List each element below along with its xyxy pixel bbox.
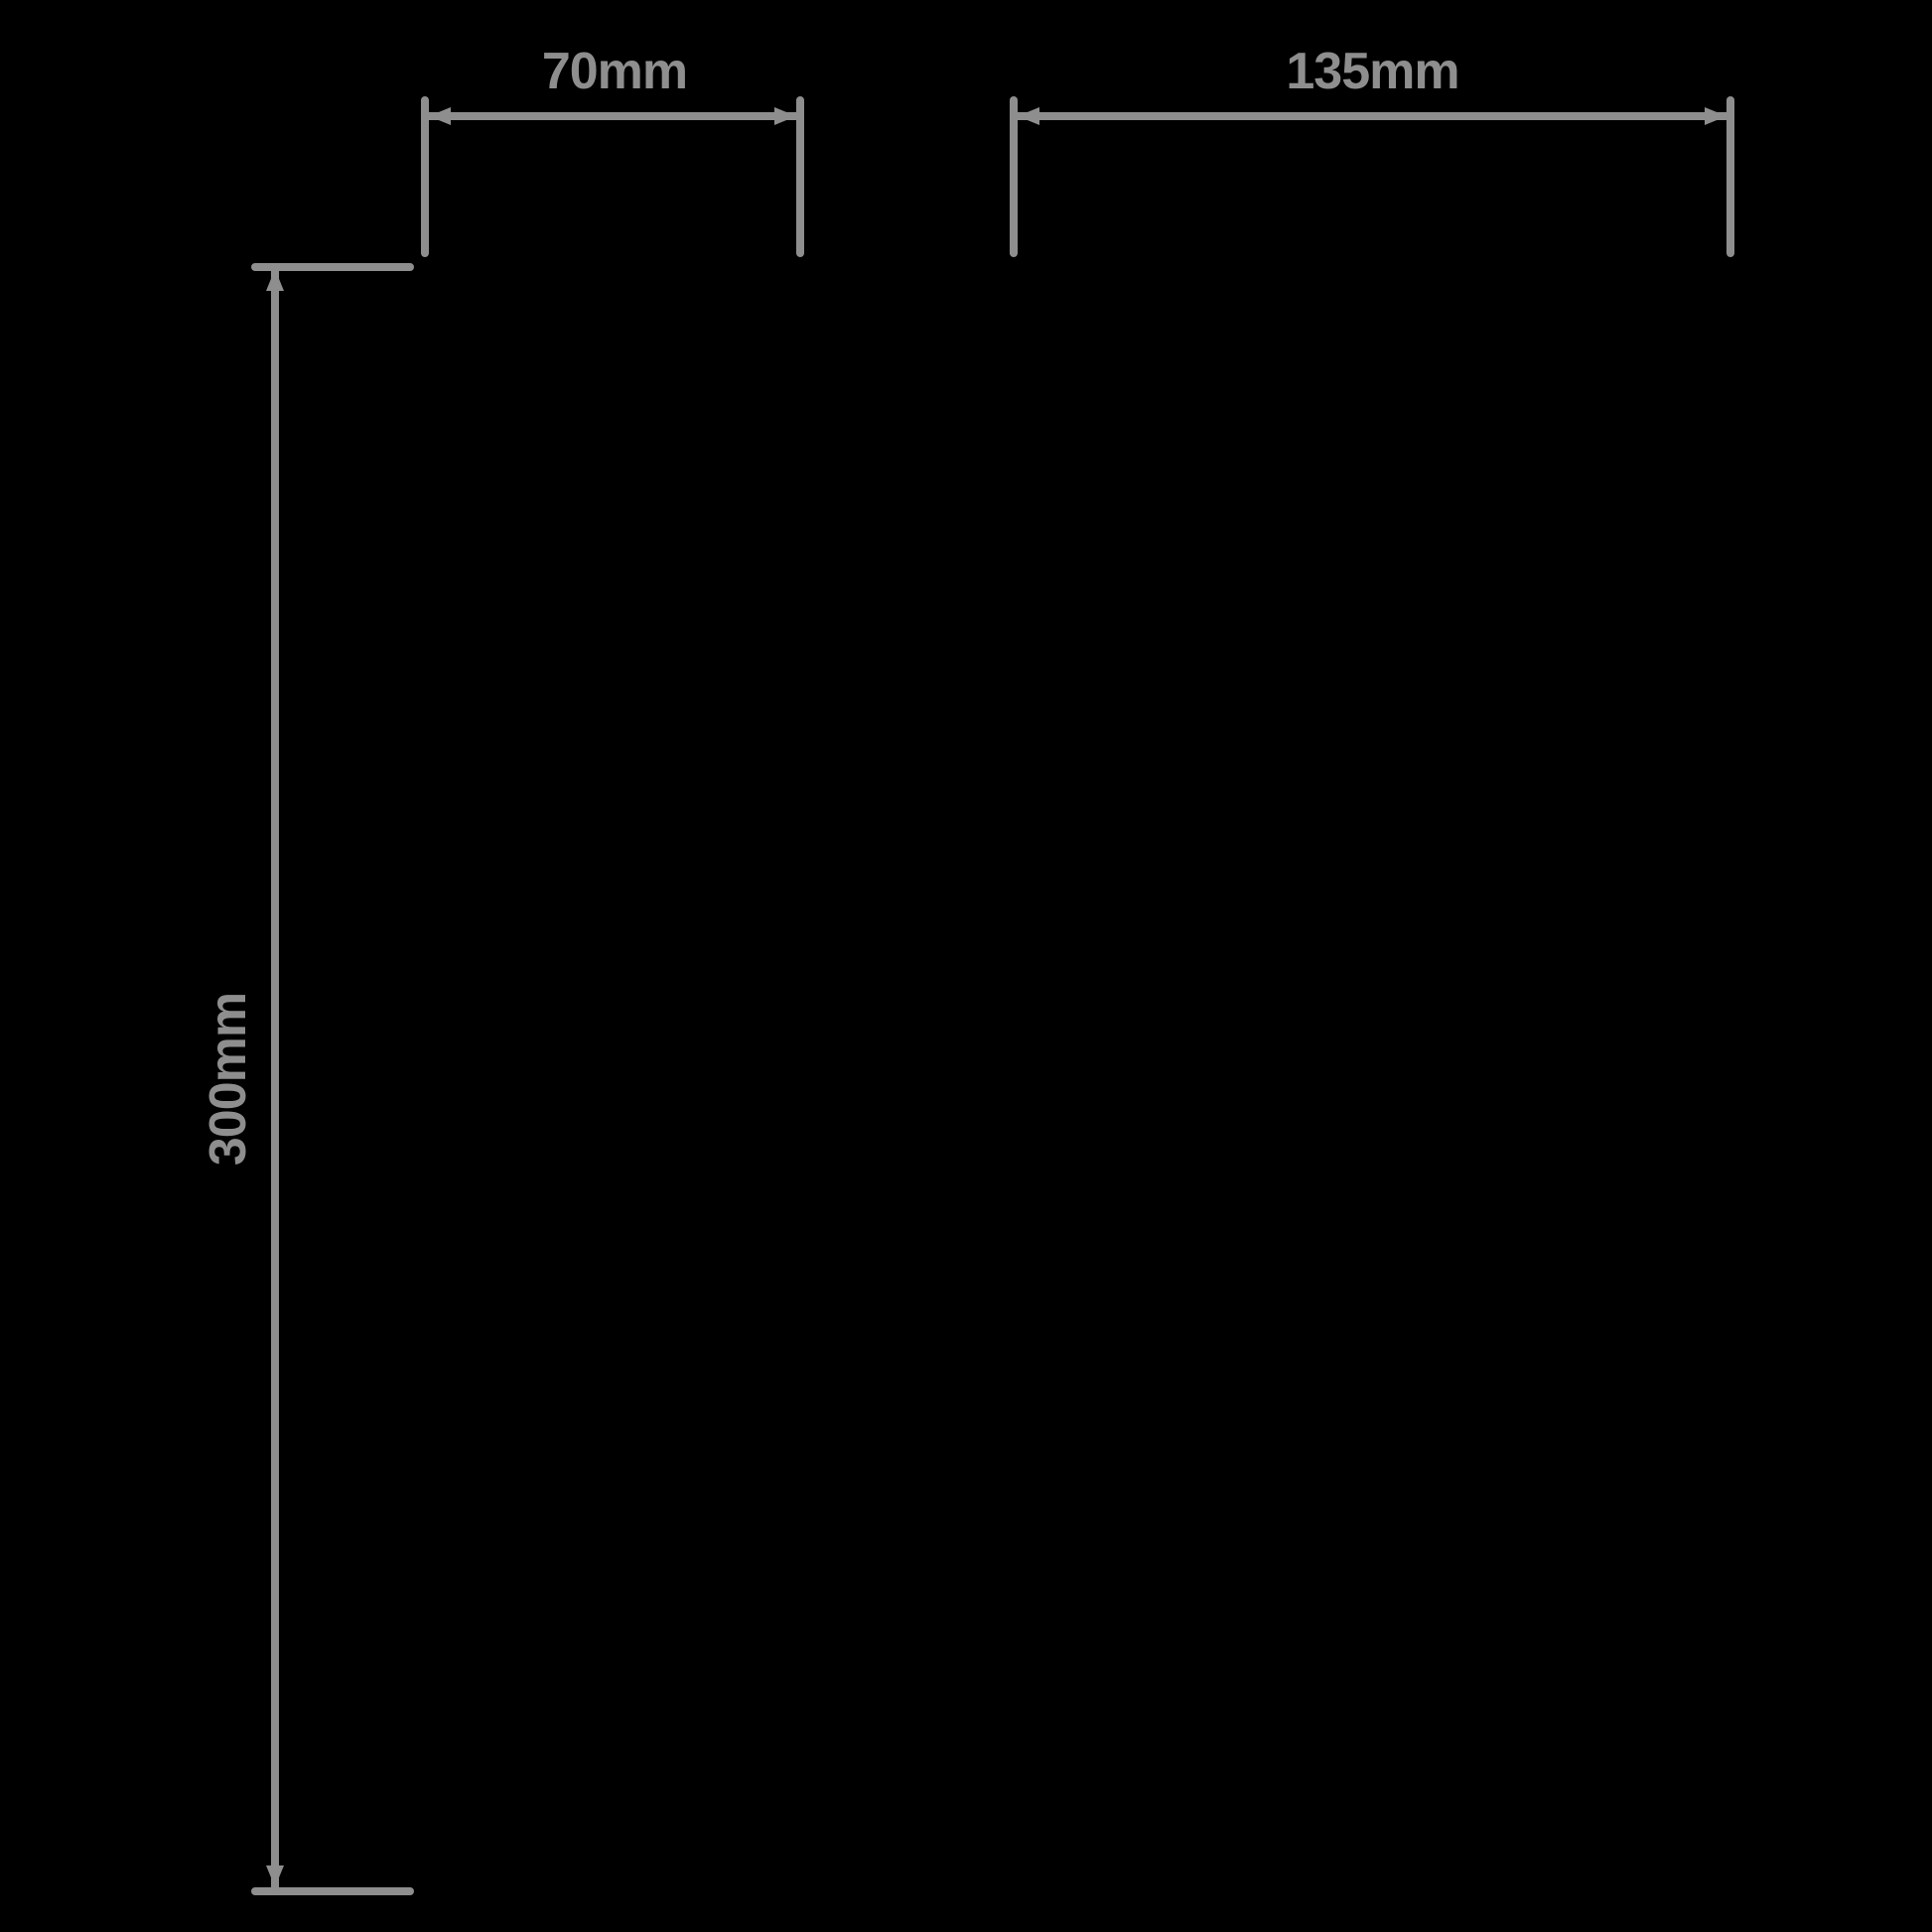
extension-line-70mm-left [421,96,429,257]
dimension-diagram: 70mm 135mm 300mm [0,0,1932,1932]
arrowhead-left-icon [1018,107,1039,125]
arrowhead-down-icon [266,1865,284,1887]
extension-line-70mm-right [796,96,804,257]
arrowhead-right-icon [774,107,796,125]
dimension-line-70mm [429,112,796,120]
arrowhead-right-icon [1705,107,1726,125]
extension-line-135mm-left [1010,96,1018,257]
dimension-line-135mm [1018,112,1726,120]
extension-line-135mm-right [1726,96,1734,257]
dimension-label-70mm: 70mm [429,46,800,97]
arrowhead-left-icon [429,107,451,125]
extension-line-300mm-top [251,263,414,271]
dimension-label-300mm: 300mm [203,930,254,1228]
dimension-line-300mm [271,269,279,1887]
extension-line-300mm-bottom [251,1887,414,1895]
dimension-label-135mm: 135mm [1015,46,1730,97]
arrowhead-up-icon [266,269,284,291]
